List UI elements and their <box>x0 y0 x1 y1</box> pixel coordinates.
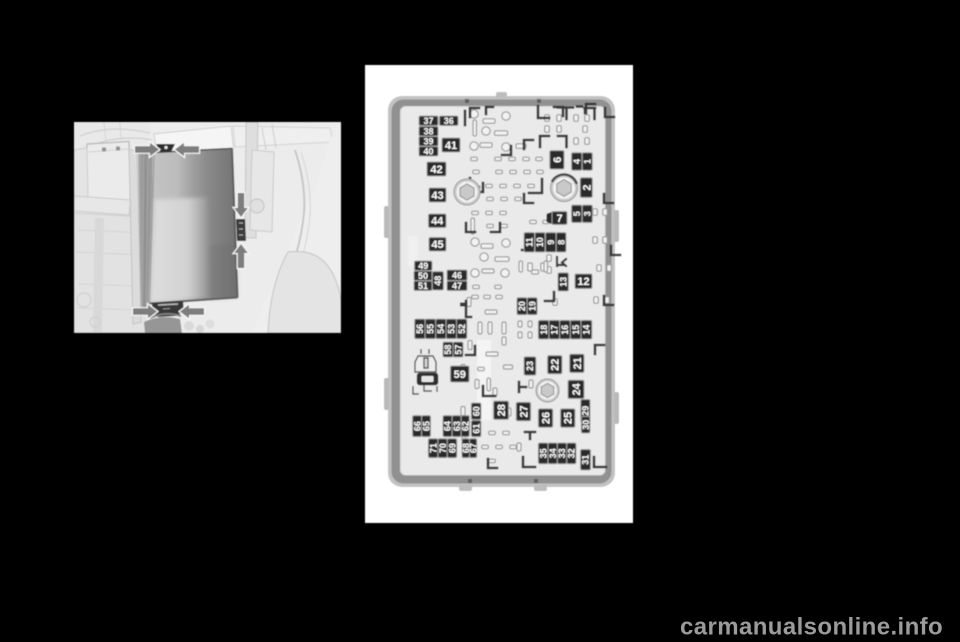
svg-text:40: 40 <box>423 147 433 157</box>
svg-text:39: 39 <box>423 137 433 147</box>
svg-text:70: 70 <box>438 443 448 453</box>
svg-text:17: 17 <box>550 325 560 335</box>
svg-text:18: 18 <box>539 325 549 335</box>
svg-text:58: 58 <box>443 345 453 355</box>
svg-text:31: 31 <box>581 455 591 465</box>
svg-text:6: 6 <box>552 157 564 163</box>
svg-text:56: 56 <box>415 324 425 334</box>
svg-text:35: 35 <box>538 448 548 458</box>
svg-text:15: 15 <box>571 325 581 335</box>
svg-text:37: 37 <box>423 116 433 126</box>
svg-text:44: 44 <box>431 216 444 228</box>
svg-text:3: 3 <box>583 211 593 216</box>
svg-text:50: 50 <box>418 271 428 281</box>
svg-text:71: 71 <box>428 443 438 453</box>
svg-text:26: 26 <box>541 412 553 424</box>
svg-text:46: 46 <box>452 271 462 281</box>
svg-text:9: 9 <box>546 240 556 245</box>
svg-text:65: 65 <box>421 421 431 431</box>
svg-text:28: 28 <box>496 404 508 416</box>
svg-text:48: 48 <box>433 276 443 286</box>
svg-text:30: 30 <box>581 420 591 430</box>
svg-text:52: 52 <box>457 324 467 334</box>
svg-text:38: 38 <box>423 127 433 137</box>
svg-text:13: 13 <box>558 277 568 287</box>
svg-text:12: 12 <box>577 276 589 288</box>
svg-text:60: 60 <box>471 406 481 416</box>
svg-text:27: 27 <box>518 405 530 417</box>
svg-text:24: 24 <box>571 382 583 395</box>
svg-text:10: 10 <box>535 237 545 247</box>
svg-text:32: 32 <box>567 448 577 458</box>
svg-text:1: 1 <box>583 159 593 164</box>
svg-text:25: 25 <box>563 412 575 424</box>
svg-text:20: 20 <box>517 301 527 311</box>
svg-text:23: 23 <box>525 361 535 371</box>
svg-text:55: 55 <box>426 324 436 334</box>
svg-text:69: 69 <box>447 443 457 453</box>
svg-text:59: 59 <box>454 369 466 381</box>
svg-text:29: 29 <box>581 406 591 416</box>
svg-text:57: 57 <box>453 345 463 355</box>
svg-text:16: 16 <box>560 325 570 335</box>
svg-text:51: 51 <box>418 281 428 291</box>
svg-text:45: 45 <box>431 239 443 251</box>
svg-text:carmanualsonline.info: carmanualsonline.info <box>680 614 943 641</box>
svg-text:14: 14 <box>582 325 592 335</box>
svg-text:11: 11 <box>525 238 535 248</box>
svg-text:54: 54 <box>436 324 446 334</box>
svg-text:43: 43 <box>431 190 443 202</box>
svg-text:21: 21 <box>572 357 584 369</box>
svg-text:47: 47 <box>452 281 462 291</box>
svg-text:22: 22 <box>550 359 562 371</box>
svg-text:42: 42 <box>430 164 442 176</box>
svg-text:8: 8 <box>556 240 566 245</box>
svg-text:2: 2 <box>581 185 593 191</box>
svg-text:7: 7 <box>556 213 562 225</box>
svg-text:36: 36 <box>444 116 454 126</box>
svg-text:67: 67 <box>468 443 478 453</box>
svg-text:5: 5 <box>572 211 582 216</box>
svg-text:19: 19 <box>527 301 537 311</box>
svg-text:49: 49 <box>418 261 428 271</box>
svg-text:4: 4 <box>572 159 582 164</box>
svg-text:61: 61 <box>471 424 481 434</box>
svg-text:53: 53 <box>447 324 457 334</box>
svg-text:62: 62 <box>461 421 471 431</box>
svg-text:41: 41 <box>445 140 457 152</box>
